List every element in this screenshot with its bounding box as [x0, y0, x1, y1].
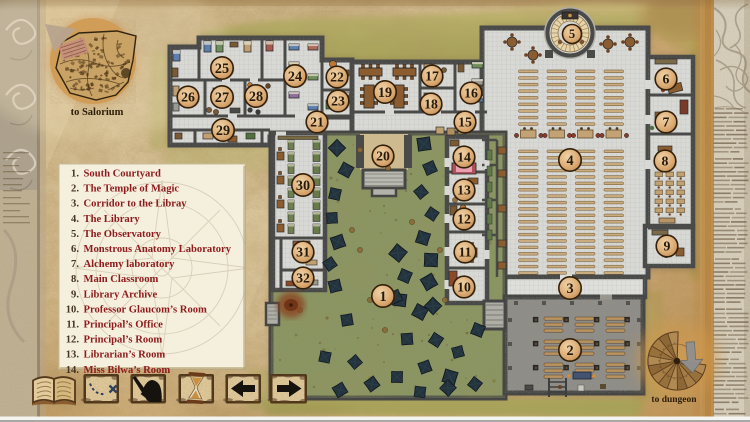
svg-text:The Observatory: The Observatory [84, 229, 162, 240]
svg-text:12: 12 [457, 212, 471, 227]
svg-text:17: 17 [425, 69, 439, 84]
svg-text:13.: 13. [66, 350, 80, 361]
svg-text:2.: 2. [71, 184, 79, 195]
svg-text:10: 10 [457, 280, 471, 295]
svg-text:3: 3 [566, 281, 573, 297]
svg-text:9: 9 [664, 239, 671, 254]
svg-text:5.: 5. [71, 229, 79, 240]
svg-text:9.: 9. [71, 289, 79, 300]
svg-text:4.: 4. [71, 214, 79, 225]
svg-text:to Salorium: to Salorium [71, 107, 124, 118]
svg-text:11: 11 [458, 245, 471, 260]
svg-text:7.: 7. [71, 259, 79, 270]
svg-text:6: 6 [663, 72, 670, 87]
svg-text:28: 28 [249, 89, 263, 105]
svg-text:27: 27 [215, 90, 229, 106]
svg-text:Principal’s Room: Principal’s Room [84, 335, 163, 346]
svg-text:Professor Glaucom’s Room: Professor Glaucom’s Room [84, 304, 208, 315]
svg-text:18: 18 [424, 97, 438, 112]
svg-text:7: 7 [663, 115, 670, 130]
svg-text:6.: 6. [71, 244, 79, 255]
svg-text:to dungeon: to dungeon [651, 395, 697, 405]
svg-text:14.: 14. [66, 365, 80, 376]
svg-text:24: 24 [288, 69, 302, 85]
svg-text:Main Classroom: Main Classroom [84, 274, 159, 285]
svg-text:1.: 1. [71, 169, 79, 180]
svg-text:South Courtyard: South Courtyard [84, 169, 162, 180]
svg-text:The Temple of Magic: The Temple of Magic [84, 184, 180, 195]
svg-text:23: 23 [331, 94, 345, 109]
svg-text:13: 13 [457, 183, 471, 198]
svg-text:Alchemy laboratory: Alchemy laboratory [84, 259, 176, 270]
svg-text:11.: 11. [66, 320, 79, 331]
svg-text:4: 4 [566, 153, 573, 169]
svg-text:21: 21 [310, 115, 324, 130]
svg-text:Monstrous Anatomy Laboratory: Monstrous Anatomy Laboratory [84, 244, 232, 255]
svg-text:14: 14 [457, 150, 471, 165]
svg-text:26: 26 [181, 90, 195, 105]
svg-text:32: 32 [296, 271, 310, 286]
svg-text:25: 25 [215, 61, 229, 77]
svg-text:12.: 12. [66, 335, 80, 346]
svg-text:31: 31 [296, 245, 310, 260]
svg-text:Principal’s Office: Principal’s Office [84, 320, 164, 331]
svg-text:2: 2 [566, 343, 573, 359]
svg-text:Corridor to the Libray: Corridor to the Libray [84, 199, 188, 210]
svg-text:The Library: The Library [84, 214, 141, 225]
svg-text:Librarian’s Room: Librarian’s Room [84, 350, 166, 361]
svg-text:8: 8 [662, 154, 669, 169]
svg-text:3.: 3. [71, 199, 79, 210]
svg-text:29: 29 [216, 123, 230, 139]
svg-text:10.: 10. [66, 304, 80, 315]
svg-text:22: 22 [330, 70, 344, 85]
svg-text:1: 1 [379, 289, 386, 305]
svg-text:19: 19 [378, 85, 392, 101]
svg-text:30: 30 [296, 178, 310, 194]
svg-text:8.: 8. [71, 274, 79, 285]
svg-text:Library Archive: Library Archive [84, 289, 158, 300]
svg-text:15: 15 [458, 115, 472, 130]
svg-text:20: 20 [376, 149, 390, 164]
svg-text:5: 5 [569, 27, 575, 41]
svg-text:16: 16 [464, 86, 478, 101]
